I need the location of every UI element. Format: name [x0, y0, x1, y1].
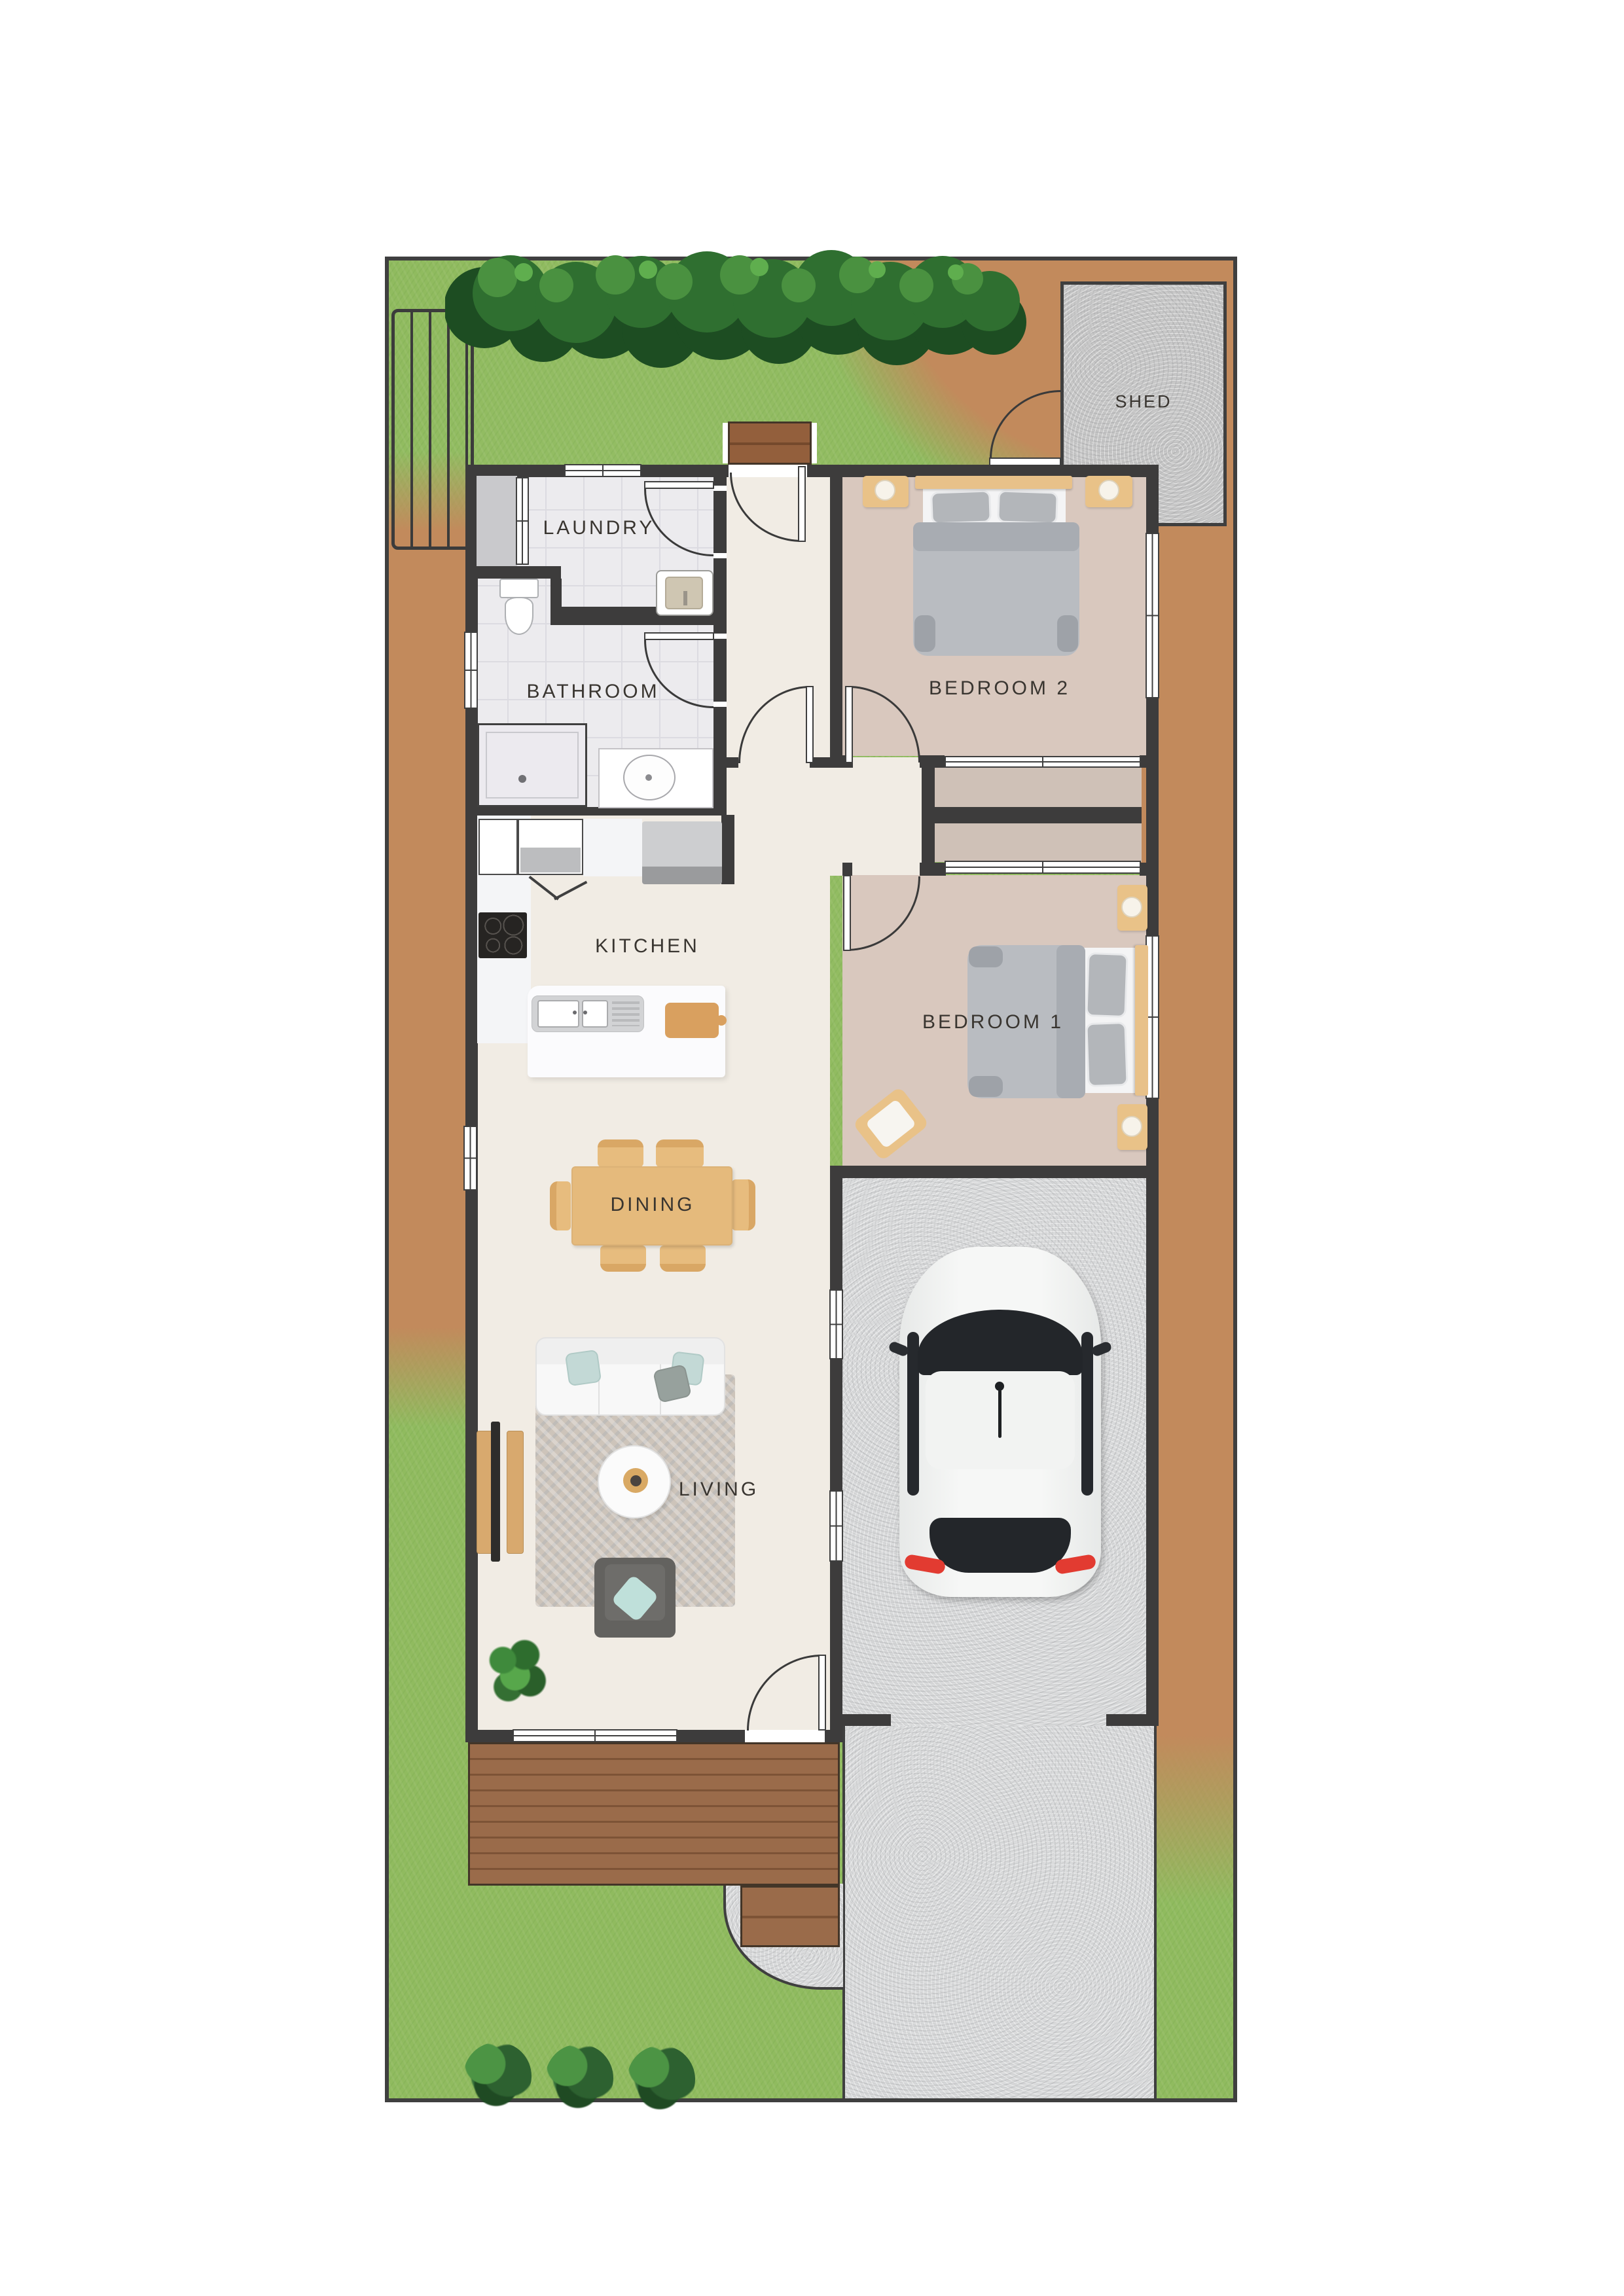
vanity-tap — [645, 774, 652, 781]
sink-bowl-right — [582, 1000, 608, 1028]
sofa-pillow-aqua-left — [565, 1350, 602, 1386]
bathroom-door-jamb-b — [713, 702, 727, 707]
wall-carport-stub-left — [842, 1714, 891, 1726]
pantry-cell-2 — [518, 819, 583, 875]
bedroom2-duvet-corner-right — [1057, 615, 1078, 652]
sink-tap — [573, 1011, 577, 1014]
bedroom2-headboard — [915, 476, 1072, 489]
shower — [477, 723, 587, 807]
tv-screen — [491, 1422, 500, 1562]
bedroom1-pillow-bottom — [1085, 1022, 1128, 1087]
laundry-door-jamb-a — [713, 486, 727, 491]
laundry-door — [644, 481, 714, 489]
robe-slider-bedroom1 — [945, 861, 1141, 874]
room-label-bathroom: BATHROOM — [526, 681, 659, 703]
room-label-bedroom2: BEDROOM 2 — [929, 677, 1070, 700]
dining-chair-3 — [600, 1246, 646, 1272]
room-label-living: LIVING — [679, 1479, 759, 1501]
toilet-bowl — [505, 597, 533, 635]
room-label-dining: DINING — [611, 1194, 695, 1216]
dining-chair-5 — [550, 1181, 571, 1230]
dining-chair-4 — [660, 1246, 706, 1272]
vanity — [598, 748, 713, 808]
deck-step — [740, 1886, 840, 1947]
cutting-board — [665, 1003, 719, 1038]
wall-bed1-stub-a — [842, 863, 852, 876]
pantry-cell-1 — [478, 819, 518, 875]
bathroom-door — [644, 632, 714, 640]
bedroom2-pillow-right — [997, 490, 1058, 524]
dirt-left-strip — [389, 452, 465, 1446]
entry-jamb-left — [723, 423, 728, 463]
room-label-kitchen: KITCHEN — [595, 935, 700, 958]
laundry-door-jamb-b — [713, 553, 727, 558]
bedroom2-lamp-left — [875, 480, 895, 501]
sofa-pillow-gray — [653, 1364, 692, 1403]
wall-robe-divider — [934, 807, 1142, 823]
potted-plant — [482, 1634, 550, 1710]
bedroom1-door — [843, 875, 851, 951]
dining-chair-1 — [598, 1139, 643, 1167]
wall-bedroom1-carport — [842, 1166, 1147, 1178]
wall-hall-stub-left — [725, 757, 738, 768]
coffee-table-bowl-center — [630, 1475, 641, 1486]
laundry-cupboard — [477, 476, 517, 566]
room-label-bedroom1: BEDROOM 1 — [922, 1011, 1064, 1033]
wall-living-carport — [830, 1166, 842, 1742]
entry-step — [728, 422, 812, 465]
bedroom2-pillow-left — [930, 490, 992, 524]
bush-2 — [545, 2044, 613, 2112]
car — [899, 1247, 1101, 1597]
bedroom2-duvet-corner-left — [914, 615, 935, 652]
bedroom2-door — [845, 686, 853, 763]
bedroom1-pillow-top — [1085, 952, 1128, 1018]
dining-chair-6 — [732, 1179, 755, 1230]
cutting-board-handle — [716, 1015, 727, 1026]
bedroom1-lamp-top — [1121, 897, 1142, 918]
kitchen-counter-top — [583, 819, 642, 876]
bedroom2-nightstand-right — [1085, 476, 1132, 507]
floor-plan-page: SHED — [0, 0, 1624, 2296]
room-label-shed: SHED — [1115, 392, 1172, 412]
bedroom1-lamp-bottom — [1121, 1116, 1142, 1137]
window-bedroom2 — [1146, 533, 1159, 698]
rear-deck — [468, 1742, 840, 1886]
driveway — [842, 1726, 1157, 2098]
car-rear-glass — [929, 1518, 1071, 1573]
armchair — [594, 1558, 676, 1638]
living-door — [818, 1655, 826, 1731]
bedroom2-lamp-right — [1098, 480, 1119, 501]
bedroom1-duvet-corner-bottom — [969, 1076, 1003, 1097]
bedroom1-headboard — [1135, 945, 1148, 1096]
bedroom1-nightstand-top — [1117, 885, 1147, 931]
pantry-appliance — [520, 848, 581, 872]
kitchen-sink — [532, 996, 644, 1032]
coffee-table — [598, 1445, 671, 1518]
laundry-cupboard-slider — [516, 477, 529, 565]
cooktop — [478, 912, 527, 958]
bedroom1-duvet-corner-top — [969, 946, 1003, 967]
floor-vestibule — [830, 757, 922, 876]
entry-jamb-right — [812, 423, 817, 463]
wall-fridge-nook — [721, 815, 734, 884]
window-living-south — [513, 1729, 677, 1742]
bedroom2-nightstand-left — [863, 476, 909, 507]
living-door-opening — [745, 1730, 825, 1742]
bush-3 — [627, 2045, 695, 2113]
sink-drainer — [612, 1001, 640, 1026]
wall-hall-stub-right — [810, 757, 842, 768]
wall-carport-stub-right — [1106, 1714, 1147, 1726]
bedroom1-nightstand-bottom — [1117, 1104, 1147, 1150]
wall-bed2-stub-b — [920, 755, 945, 768]
window-living-carport-2 — [829, 1490, 843, 1562]
bedroom2-duvet — [913, 522, 1079, 656]
wall-laundry-divider-a — [466, 566, 561, 579]
bush-1 — [463, 2042, 532, 2110]
wall-bed1-stub-b — [920, 863, 946, 876]
window-living-carport-1 — [829, 1289, 843, 1359]
laundry-tub-tap — [683, 591, 687, 605]
car-antenna-stem — [998, 1390, 1001, 1438]
sofa — [535, 1337, 725, 1416]
hall-door — [806, 686, 814, 763]
toilet-cistern — [499, 579, 539, 598]
window-laundry — [564, 464, 641, 477]
shower-tray — [486, 732, 579, 798]
window-bathroom — [464, 632, 478, 709]
wall-laundry-divider-b — [550, 579, 562, 607]
laundry-tub — [656, 570, 713, 616]
bedroom2-duvet-fold — [913, 522, 1079, 551]
wall-vestibule-robe — [922, 767, 935, 876]
window-dining — [463, 1126, 477, 1191]
tv-unit-shelf-right — [507, 1431, 524, 1554]
dining-chair-2 — [656, 1139, 704, 1167]
wall-hall-bedroom2 — [830, 465, 842, 757]
bathroom-door-jamb-a — [713, 634, 727, 639]
shower-drain — [518, 775, 526, 783]
robe-slider-bedroom2 — [945, 756, 1141, 768]
fridge — [642, 821, 722, 884]
car-side-glass-right — [1081, 1332, 1093, 1496]
entry-door — [798, 466, 806, 542]
hedge — [445, 209, 1034, 381]
room-label-laundry: LAUNDRY — [543, 517, 655, 539]
